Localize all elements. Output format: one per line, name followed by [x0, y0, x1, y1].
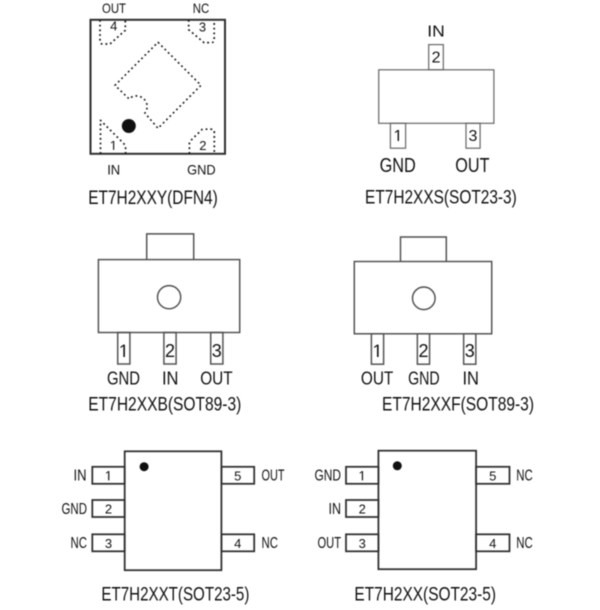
svg-text:ET7H2XXB(SOT89-3): ET7H2XXB(SOT89-3): [88, 394, 241, 416]
svg-text:3: 3: [359, 536, 366, 551]
svg-text:GND: GND: [62, 501, 88, 518]
svg-text:NC: NC: [516, 535, 533, 552]
svg-text:2: 2: [199, 138, 206, 153]
svg-text:IN: IN: [74, 468, 87, 485]
svg-text:OUT: OUT: [262, 468, 285, 485]
svg-text:IN: IN: [427, 24, 445, 41]
svg-text:GND: GND: [187, 161, 216, 177]
svg-text:NC: NC: [71, 535, 88, 552]
svg-text:ET7H2XX(SOT23-5): ET7H2XX(SOT23-5): [354, 584, 496, 606]
svg-text:IN: IN: [329, 501, 342, 518]
svg-text:3: 3: [465, 341, 475, 361]
svg-text:5: 5: [489, 468, 496, 483]
svg-text:3: 3: [105, 536, 112, 551]
svg-text:2: 2: [105, 502, 112, 517]
svg-text:3: 3: [469, 128, 478, 145]
svg-text:IN: IN: [107, 161, 120, 177]
svg-text:4: 4: [234, 536, 241, 551]
svg-text:OUT: OUT: [200, 368, 232, 388]
svg-text:3: 3: [212, 341, 222, 361]
svg-text:GND: GND: [380, 155, 416, 177]
svg-text:OUT: OUT: [361, 368, 393, 388]
svg-text:2: 2: [432, 49, 441, 66]
svg-text:OUT: OUT: [455, 155, 489, 177]
svg-text:OUT: OUT: [102, 0, 126, 16]
svg-text:4: 4: [489, 536, 496, 551]
svg-text:2: 2: [165, 341, 175, 361]
svg-text:GND: GND: [408, 368, 440, 388]
svg-text:4: 4: [110, 19, 117, 34]
svg-text:NC: NC: [516, 468, 533, 485]
svg-text:IN: IN: [162, 368, 179, 388]
svg-text:ET7H2XXT(SOT23-5): ET7H2XXT(SOT23-5): [101, 584, 249, 606]
svg-text:ET7H2XXY(DFN4): ET7H2XXY(DFN4): [88, 187, 218, 209]
svg-text:OUT: OUT: [318, 535, 342, 552]
svg-text:NC: NC: [193, 0, 210, 16]
svg-text:2: 2: [359, 502, 366, 517]
svg-text:IN: IN: [462, 368, 479, 388]
svg-text:GND: GND: [107, 368, 140, 388]
svg-text:GND: GND: [315, 468, 342, 485]
svg-text:2: 2: [418, 341, 428, 361]
svg-text:NC: NC: [262, 535, 279, 552]
svg-text:3: 3: [199, 19, 206, 34]
svg-text:ET7H2XXS(SOT23-3): ET7H2XXS(SOT23-3): [365, 186, 517, 208]
svg-text:5: 5: [234, 468, 241, 483]
svg-text:ET7H2XXF(SOT89-3): ET7H2XXF(SOT89-3): [382, 394, 534, 416]
